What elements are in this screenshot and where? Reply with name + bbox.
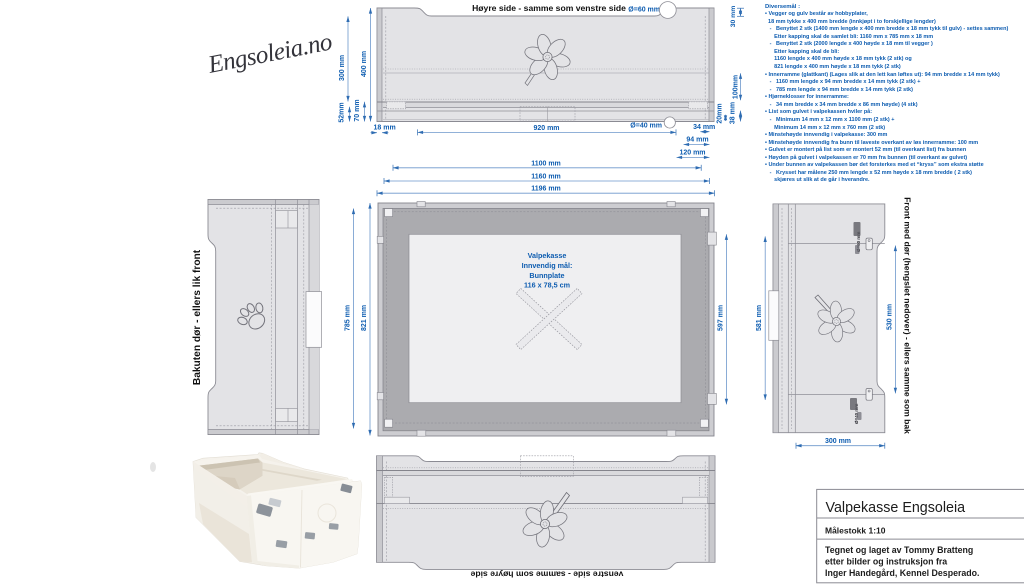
svg-text:venstre side - samme som høyre: venstre side - samme som høyre side — [470, 569, 623, 579]
svg-text:Ø=60 mm: Ø=60 mm — [628, 6, 660, 13]
svg-text:30 mm: 30 mm — [730, 6, 737, 28]
svg-text:Bakuten dør - ellers lik front: Bakuten dør - ellers lik front — [192, 249, 203, 385]
svg-text:300 mm: 300 mm — [339, 55, 346, 81]
svg-text:Valpekasse: Valpekasse — [528, 251, 567, 260]
svg-text:400 mm: 400 mm — [361, 51, 368, 77]
svg-text:116 x 78,5 cm: 116 x 78,5 cm — [524, 281, 570, 290]
svg-text:94 mm: 94 mm — [686, 137, 708, 144]
svg-text:530 mm: 530 mm — [886, 304, 893, 330]
svg-text:Front med dør (hengslet nedove: Front med dør (hengslet nedover) - eller… — [903, 197, 913, 434]
svg-text:52mm: 52mm — [339, 102, 346, 122]
svg-text:Målestokk 1:10: Målestokk 1:10 — [825, 526, 886, 536]
svg-text:821 mm: 821 mm — [361, 305, 368, 331]
svg-text:Innvendig mål:: Innvendig mål: — [522, 261, 573, 270]
svg-text:Engsoleia.no: Engsoleia.no — [205, 28, 334, 79]
svg-text:Tegnet og laget av Tommy Bratt: Tegnet og laget av Tommy Bratteng — [825, 545, 973, 555]
svg-text:120 mm: 120 mm — [679, 150, 705, 157]
svg-text:etter bilder og instruksjon fr: etter bilder og instruksjon fra — [825, 557, 947, 567]
svg-text:1160 mm: 1160 mm — [531, 173, 561, 180]
svg-text:Inger Handegård, Kennel Desper: Inger Handegård, Kennel Desperado. — [825, 568, 979, 578]
svg-text:785 mm: 785 mm — [345, 305, 352, 331]
svg-text:1196 mm: 1196 mm — [531, 186, 561, 193]
svg-text:20mm: 20mm — [717, 103, 724, 123]
svg-text:300 mm: 300 mm — [825, 438, 851, 445]
svg-text:Bunnplate: Bunnplate — [529, 271, 564, 280]
svg-text:597 mm: 597 mm — [718, 305, 725, 331]
svg-text:18 mm: 18 mm — [374, 125, 396, 132]
svg-text:34 mm: 34 mm — [693, 124, 715, 131]
svg-text:920 mm: 920 mm — [533, 125, 559, 132]
svg-text:70 mm: 70 mm — [354, 99, 361, 121]
svg-text:Høyre side - samme som venstre: Høyre side - samme som venstre side — [472, 3, 626, 13]
svg-text:38 mm: 38 mm — [730, 102, 737, 124]
svg-text:581 mm: 581 mm — [756, 305, 763, 331]
svg-text:100mm: 100mm — [733, 75, 740, 99]
svg-text:1100 mm: 1100 mm — [531, 160, 561, 167]
svg-text:Valpekasse Engsoleia: Valpekasse Engsoleia — [826, 500, 966, 516]
svg-text:Ø=40 mm: Ø=40 mm — [630, 122, 662, 129]
